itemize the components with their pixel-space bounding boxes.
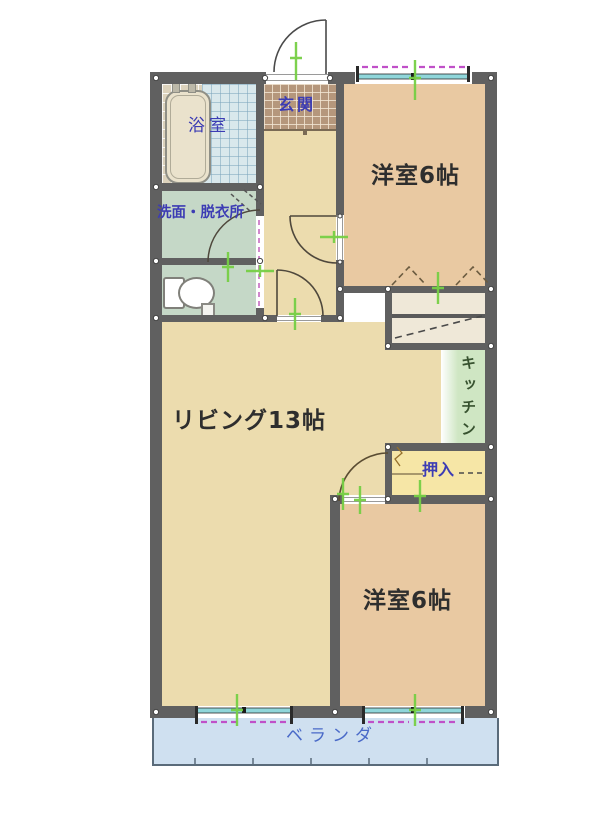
wall-bottom-mid: [293, 706, 362, 718]
wall-bedroom-bottom-top: [385, 495, 485, 504]
bedroom-bottom-label: 洋室6帖: [363, 590, 452, 613]
entrance-label: 玄関: [278, 97, 316, 113]
bathroom-label: 浴室: [188, 118, 230, 135]
washroom-door-opening: [256, 216, 264, 308]
wall-toilet-bottom: [162, 315, 277, 322]
entrance-step-edge: [264, 129, 336, 131]
washroom-label: 洗面・脱衣所: [157, 206, 244, 221]
wall-left: [150, 72, 162, 718]
bedroom-top-label: 洋室6帖: [371, 165, 460, 188]
closet-shelf-divider: [392, 314, 485, 318]
bathtub-icon: [165, 90, 211, 184]
wall-oshiire-top: [385, 443, 485, 451]
bedroom-top-door-opening: [336, 215, 344, 260]
kitchen-label: キッチン: [460, 355, 475, 443]
entrance-step-mark: [303, 131, 307, 135]
window-top-opening: [355, 72, 472, 84]
entrance-door-icon: [274, 20, 326, 74]
kitchen-counter-edge: [441, 350, 458, 443]
wall-closet-bottom: [385, 343, 485, 350]
window-bedroom-bottom-opening: [362, 706, 465, 718]
hallway-floor: [264, 131, 336, 315]
hall-living-door-opening: [277, 315, 321, 322]
wall-bath-bottom: [162, 183, 256, 191]
wall-hall-right-upper: [336, 84, 344, 215]
wall-hall-bottom-stub: [321, 315, 344, 322]
window-living-opening: [195, 706, 293, 718]
wall-closet-left: [385, 286, 392, 350]
wall-washroom-bottom: [162, 258, 256, 265]
wall-bedroom-top-bottom: [344, 286, 485, 293]
floorplan-canvas: 浴室 玄関 洗面・脱衣所 洋室6帖 リビング13帖 キッチン 押入 洋室6帖 ベ…: [0, 0, 602, 832]
entrance-door-sill: [266, 72, 328, 84]
washroom-floor: [162, 191, 256, 258]
wall-top-left: [150, 72, 266, 84]
living-label: リビング13帖: [172, 410, 326, 433]
wall-bath-right-upper: [256, 84, 264, 216]
wall-hall-right-lower: [336, 260, 344, 322]
oshiire-label: 押入: [422, 462, 454, 478]
wall-top-mid: [328, 72, 355, 84]
wall-right: [485, 72, 497, 718]
closet-interior: [392, 293, 485, 343]
bedroom-bottom-door-opening: [344, 495, 385, 504]
wall-bedroom-bottom-left: [330, 495, 340, 706]
veranda-label: ベランダ: [286, 728, 378, 745]
